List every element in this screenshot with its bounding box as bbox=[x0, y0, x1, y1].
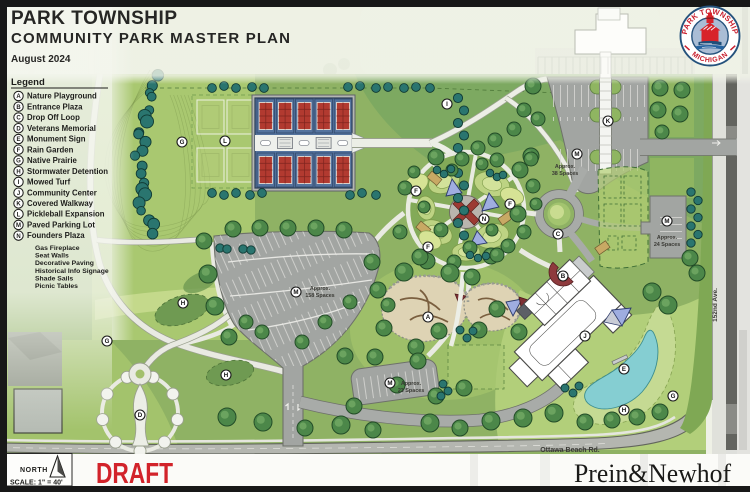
svg-text:Decorative Paving: Decorative Paving bbox=[35, 260, 94, 267]
svg-text:B: B bbox=[561, 273, 566, 280]
svg-text:Paved Parking Lot: Paved Parking Lot bbox=[27, 221, 95, 230]
svg-text:Community Center: Community Center bbox=[27, 188, 97, 197]
svg-text:158 Spaces: 158 Spaces bbox=[305, 293, 334, 299]
svg-text:NORTH: NORTH bbox=[20, 467, 48, 474]
svg-text:F: F bbox=[508, 201, 512, 208]
svg-text:Approx.: Approx. bbox=[555, 164, 576, 170]
svg-text:J: J bbox=[583, 333, 587, 340]
svg-text:G: G bbox=[105, 338, 110, 345]
svg-text:Prein&Newhof: Prein&Newhof bbox=[574, 459, 731, 488]
svg-text:PARK TOWNSHIP: PARK TOWNSHIP bbox=[11, 8, 177, 29]
svg-text:I: I bbox=[446, 101, 448, 108]
svg-text:F: F bbox=[17, 148, 21, 154]
svg-text:Covered Walkway: Covered Walkway bbox=[27, 199, 94, 208]
svg-text:B: B bbox=[16, 105, 21, 111]
svg-text:Ottawa Beach Rd.: Ottawa Beach Rd. bbox=[540, 447, 600, 454]
svg-text:J: J bbox=[17, 191, 20, 197]
svg-text:M: M bbox=[574, 151, 579, 158]
svg-text:Drop Off Loop: Drop Off Loop bbox=[27, 113, 80, 122]
svg-text:Rain Garden: Rain Garden bbox=[27, 145, 74, 154]
svg-text:A: A bbox=[426, 314, 431, 321]
svg-text:Veterans Memorial: Veterans Memorial bbox=[27, 124, 96, 133]
svg-text:F: F bbox=[426, 244, 430, 251]
svg-text:Gas Fireplace: Gas Fireplace bbox=[35, 245, 80, 252]
svg-text:152nd Ave.: 152nd Ave. bbox=[712, 288, 719, 322]
svg-text:A: A bbox=[16, 94, 21, 100]
svg-text:Approx.: Approx. bbox=[310, 286, 331, 292]
svg-text:H: H bbox=[622, 407, 627, 414]
svg-text:Picnic Tables: Picnic Tables bbox=[35, 283, 78, 290]
svg-text:Mowed Turf: Mowed Turf bbox=[27, 178, 71, 187]
svg-text:M: M bbox=[16, 223, 21, 229]
svg-text:SCALE: 1" = 40': SCALE: 1" = 40' bbox=[10, 480, 63, 487]
svg-text:C: C bbox=[556, 231, 561, 238]
svg-text:L: L bbox=[223, 138, 227, 145]
svg-text:H: H bbox=[224, 372, 229, 379]
svg-text:M: M bbox=[664, 218, 669, 225]
svg-text:M: M bbox=[293, 289, 298, 296]
svg-text:Approx.: Approx. bbox=[657, 235, 678, 241]
svg-text:E: E bbox=[16, 137, 20, 143]
svg-text:August 2024: August 2024 bbox=[11, 54, 71, 65]
svg-text:G: G bbox=[180, 139, 185, 146]
svg-text:G: G bbox=[671, 393, 676, 400]
svg-text:Stormwater Detention: Stormwater Detention bbox=[27, 167, 108, 176]
svg-text:K: K bbox=[16, 202, 21, 208]
svg-text:Approx.: Approx. bbox=[401, 381, 422, 387]
svg-text:Monument Sign: Monument Sign bbox=[27, 135, 86, 144]
svg-text:M: M bbox=[387, 380, 392, 387]
svg-text:Historical Info Signage: Historical Info Signage bbox=[35, 268, 109, 275]
svg-text:24 Spaces: 24 Spaces bbox=[654, 242, 680, 248]
svg-text:Founders Plaza: Founders Plaza bbox=[27, 231, 85, 240]
svg-text:Native Prairie: Native Prairie bbox=[27, 156, 78, 165]
svg-text:K: K bbox=[606, 118, 611, 125]
svg-text:Legend: Legend bbox=[11, 77, 45, 88]
svg-text:L: L bbox=[17, 212, 21, 218]
svg-text:C: C bbox=[16, 116, 21, 122]
svg-text:E: E bbox=[622, 366, 626, 373]
svg-text:Nature Playground: Nature Playground bbox=[27, 92, 97, 101]
svg-text:DRAFT: DRAFT bbox=[96, 458, 173, 490]
svg-text:Entrance Plaza: Entrance Plaza bbox=[27, 102, 83, 111]
svg-text:23 Spaces: 23 Spaces bbox=[398, 388, 424, 394]
svg-text:Seat Walls: Seat Walls bbox=[35, 253, 69, 260]
svg-text:Pickleball Expansion: Pickleball Expansion bbox=[27, 210, 105, 219]
svg-text:D: D bbox=[16, 126, 21, 132]
svg-text:N: N bbox=[16, 234, 20, 240]
svg-text:N: N bbox=[482, 216, 487, 223]
svg-text:Shade Sails: Shade Sails bbox=[35, 275, 73, 282]
svg-text:H: H bbox=[16, 169, 20, 175]
svg-text:D: D bbox=[138, 412, 143, 419]
svg-text:H: H bbox=[181, 300, 186, 307]
svg-text:G: G bbox=[16, 159, 21, 165]
svg-text:38 Spaces: 38 Spaces bbox=[552, 171, 578, 177]
svg-text:COMMUNITY PARK MASTER PLAN: COMMUNITY PARK MASTER PLAN bbox=[11, 30, 290, 47]
svg-text:F: F bbox=[414, 188, 418, 195]
